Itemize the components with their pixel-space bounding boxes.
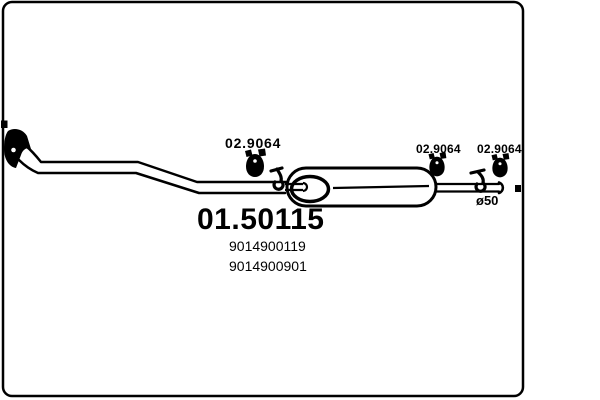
exhaust-diagram xyxy=(0,0,600,400)
oem-number: 9014900119 xyxy=(229,239,306,253)
clamp-icon xyxy=(492,153,510,177)
mount-square-icon xyxy=(1,121,8,129)
clamp-icon xyxy=(245,149,266,178)
middle-silencer xyxy=(285,168,436,206)
hanger-icon xyxy=(471,170,485,191)
oem-number: 9014900901 xyxy=(229,259,307,273)
parts-diagram-page: 02.9064 02.9064 02.9064 01.50115 9014900… xyxy=(0,0,600,400)
pipe-diameter-label: ø50 xyxy=(476,194,498,207)
diagram-border xyxy=(3,2,523,396)
clamp-part-label: 02.9064 xyxy=(416,143,461,155)
clamp-part-label: 02.9064 xyxy=(225,136,281,150)
front-flange-icon xyxy=(4,129,31,168)
clamp-part-label: 02.9064 xyxy=(477,143,522,155)
hanger-icon xyxy=(271,168,283,189)
end-marker-icon xyxy=(515,185,521,192)
main-part-number: 01.50115 xyxy=(197,205,324,235)
tail-pipe xyxy=(436,183,503,194)
